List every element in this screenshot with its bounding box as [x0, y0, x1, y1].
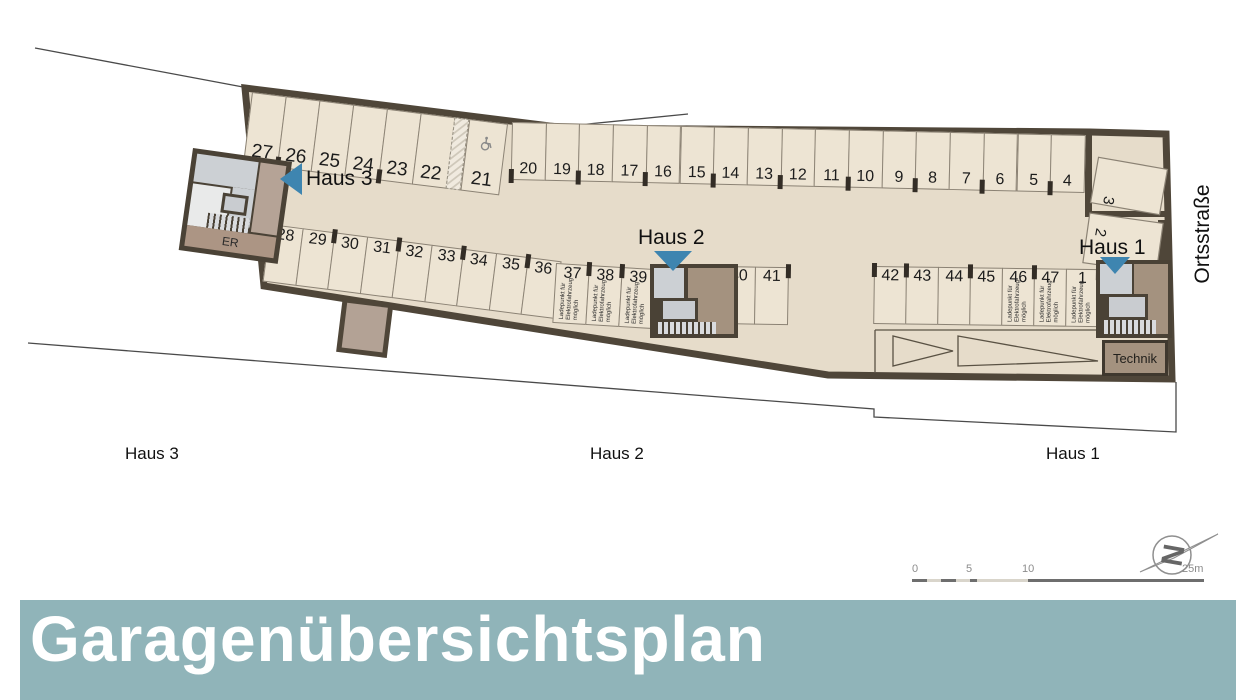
scale-bar-segment	[970, 579, 977, 582]
parking-space-number: 11	[815, 167, 848, 186]
scale-tick: 5	[966, 563, 972, 575]
parking-row: 4243444546Ladepunkt fürElektrofahrzeugmö…	[873, 266, 1098, 327]
parking-space-number: 5	[1017, 171, 1050, 190]
parking-space-number: 15	[680, 164, 713, 183]
parking-space-number: 30	[333, 233, 367, 255]
parking-space-12: 12	[780, 128, 816, 187]
pillar-mark	[508, 169, 513, 183]
parking-space-47: 47Ladepunkt fürElektrofahrzeugmöglich	[1033, 268, 1067, 326]
wheelchair-icon	[478, 135, 495, 152]
scale-tick: 25m	[1182, 563, 1203, 575]
pillar-mark	[619, 264, 625, 278]
technik-room-label: Technik	[1102, 340, 1168, 376]
ev-charging-note: Ladepunkt fürElektrofahrzeugmöglich	[1007, 280, 1029, 322]
pillar-mark	[710, 174, 715, 188]
haus2-marker-label: Haus 2	[638, 226, 705, 250]
parking-space-44: 44	[937, 267, 971, 325]
protruding-room	[339, 300, 391, 355]
scale-bar: 0 5 10 25m	[912, 563, 1212, 587]
parking-space-number: 7	[950, 170, 983, 189]
parking-space-number: 8	[916, 169, 949, 188]
parking-space-number: 33	[430, 246, 464, 268]
parking-space-number: 12	[781, 166, 814, 185]
parking-space-4: 4	[1050, 134, 1086, 193]
parking-space-number: 14	[714, 165, 747, 184]
parking-space-43: 43	[905, 266, 939, 324]
garage-overview-plan: N 27262524232221201918171615141312111098…	[0, 0, 1236, 700]
ev-charging-note: Ladepunkt fürElektrofahrzeugmöglich	[1039, 281, 1061, 323]
ev-charging-note: Ladepunkt fürElektrofahrzeugmöglich	[1071, 281, 1093, 323]
street-label: Ortsstraße	[1191, 169, 1215, 299]
parking-row: 37Ladepunkt fürElektrofahrzeugmöglich38L…	[552, 263, 654, 329]
title-band: Garagenübersichtsplan	[20, 600, 1236, 700]
parking-space-number: 42	[875, 267, 906, 285]
elevator	[1106, 294, 1148, 320]
parking-space-number: 45	[971, 268, 1002, 286]
parking-space-number: 6	[983, 171, 1016, 190]
haus3-marker-label: Haus 3	[306, 167, 373, 191]
parking-space-1: 1Ladepunkt fürElektrofahrzeugmöglich	[1065, 269, 1099, 327]
scale-bar-segment	[912, 579, 927, 582]
parking-space-number: 13	[748, 165, 781, 184]
parking-space-46: 46Ladepunkt fürElektrofahrzeugmöglich	[1001, 268, 1035, 326]
pillar-mark	[778, 175, 783, 189]
haus2-arrow-icon	[654, 251, 692, 271]
room	[654, 268, 684, 298]
haus3-arrow-icon	[280, 163, 302, 195]
parking-space-14: 14	[713, 127, 749, 186]
ev-charging-note: Ladepunkt fürElektrofahrzeugmöglich	[625, 281, 649, 324]
footer-label-haus3: Haus 3	[125, 444, 179, 464]
parking-space-number: 9	[882, 168, 915, 187]
parking-space-number: 32	[398, 242, 432, 264]
parking-space-8: 8	[915, 131, 951, 190]
pillar-mark	[980, 180, 985, 194]
site-plan-drawing: N	[0, 0, 1236, 700]
staircase	[1102, 320, 1156, 334]
parking-space-number: 4	[1051, 172, 1084, 191]
pillar-mark	[1047, 181, 1052, 195]
parking-space-number: 41	[756, 268, 788, 287]
wheelchair-icon-wrap	[477, 135, 494, 157]
parking-space-number: 18	[579, 162, 612, 181]
ev-charging-note: Ladepunkt fürElektrofahrzeugmöglich	[592, 279, 616, 322]
parking-space-number: 44	[939, 268, 970, 286]
parking-space-number: 10	[849, 168, 882, 187]
pillar-mark	[871, 263, 876, 277]
haus1-arrow-icon	[1100, 257, 1130, 274]
pillar-mark	[967, 264, 972, 278]
parking-space-number: 17	[613, 162, 646, 181]
page-title: Garagenübersichtsplan	[30, 602, 766, 676]
pillar-mark	[575, 170, 580, 184]
parking-space-number: 31	[365, 238, 399, 260]
stair-core-haus2	[650, 264, 738, 338]
scale-tick: 10	[1022, 563, 1034, 575]
stair-core-er: ER	[179, 148, 292, 264]
scale-tick: 0	[912, 563, 918, 575]
elevator	[660, 298, 698, 322]
parking-space-number: 22	[413, 161, 448, 187]
parking-space-number: 20	[512, 160, 545, 179]
parking-space-number: 34	[462, 250, 496, 272]
parking-space-number: 21	[462, 167, 501, 193]
scale-bar-segment	[941, 579, 956, 582]
parking-space-16: 16	[645, 125, 681, 184]
elevator	[220, 193, 249, 216]
parking-space-6: 6	[982, 133, 1018, 192]
parking-space-number: 35	[494, 254, 528, 276]
pillar-mark	[1031, 265, 1036, 279]
parking-space-number: 19	[545, 161, 578, 180]
pillar-mark	[643, 172, 648, 186]
pillar-mark	[586, 262, 592, 276]
parking-space-18: 18	[578, 124, 614, 183]
staircase	[656, 322, 716, 334]
parking-space-41: 41	[754, 267, 789, 326]
parking-space-10: 10	[848, 130, 884, 189]
footer-label-haus1: Haus 1	[1046, 444, 1100, 464]
parking-space-number: 16	[646, 163, 679, 182]
parking-space-number: 29	[301, 229, 335, 251]
ev-charging-note: Ladepunkt fürElektrofahrzeugmöglich	[559, 277, 583, 320]
parking-space-number: 23	[379, 157, 414, 183]
parking-space-38: 38Ladepunkt fürElektrofahrzeugmöglich	[585, 265, 623, 327]
parking-space-45: 45	[969, 267, 1003, 325]
scale-bar-segment	[1028, 579, 1204, 582]
parking-space-number: 43	[907, 267, 938, 285]
pillar-mark	[912, 178, 917, 192]
footer-label-haus2: Haus 2	[590, 444, 644, 464]
parking-space-37: 37Ladepunkt fürElektrofahrzeugmöglich	[552, 263, 590, 325]
parking-space-42: 42	[873, 266, 907, 324]
pillar-mark	[845, 177, 850, 191]
parking-space-20: 20	[511, 122, 547, 181]
pillar-mark	[903, 263, 908, 277]
pillar-mark	[785, 264, 790, 278]
